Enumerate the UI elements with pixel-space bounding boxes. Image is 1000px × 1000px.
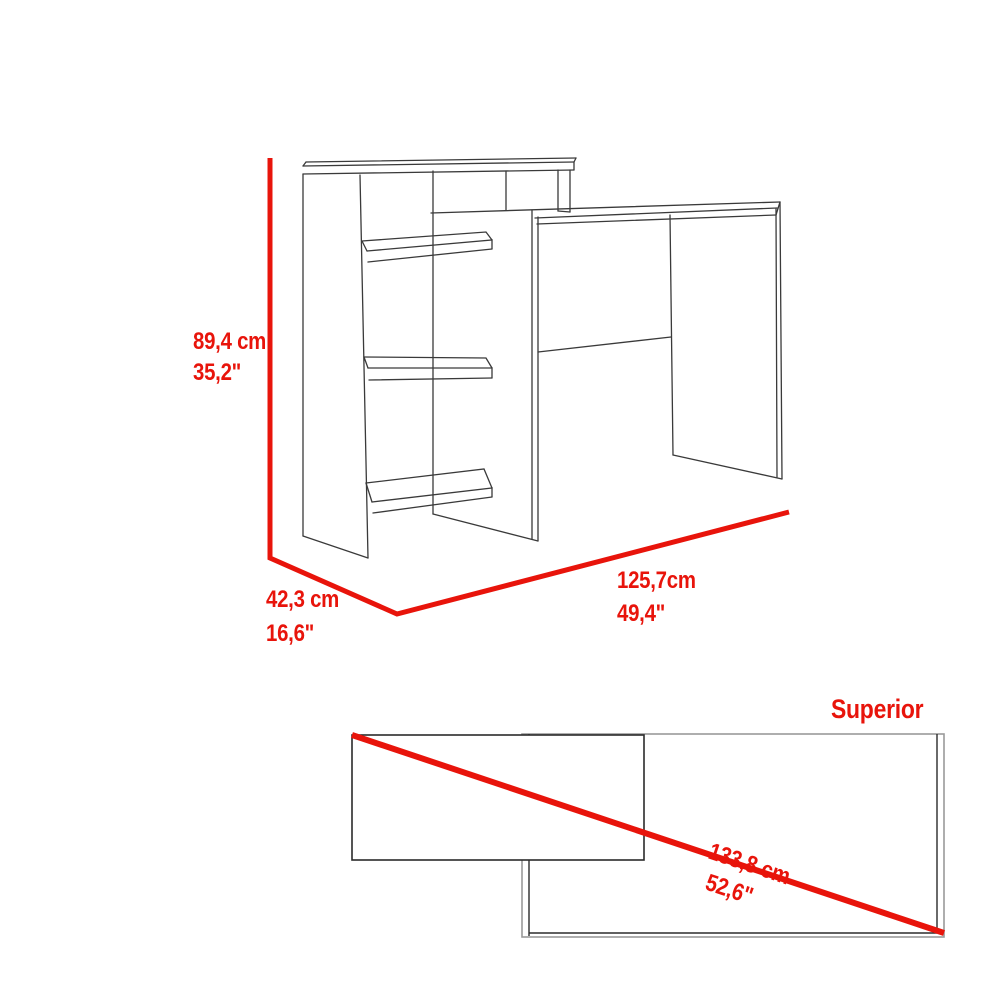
diagram-svg: 89,4 cm 35,2" 42,3 cm 16,6" 125,7cm 49,4… [0,0,1000,1000]
top-view: Superior 133,8 cm 52,6" [352,694,944,937]
right-side-panel [670,202,782,479]
furniture-dimension-diagram: 89,4 cm 35,2" 42,3 cm 16,6" 125,7cm 49,4… [0,0,1000,1000]
depth-label-in: 16,6" [266,619,314,646]
width-label-cm: 125,7cm [617,566,696,593]
desk-top [431,202,780,224]
shelf-middle [364,357,492,380]
shelf-upper [362,232,492,262]
dimension-lines-3d [270,158,789,614]
height-label-in: 35,2" [193,358,241,385]
desk-3d-view [303,158,782,558]
width-label-in: 49,4" [617,599,665,626]
hutch-supports [506,170,570,212]
shelf-bottom [366,469,492,513]
height-dimension-line [270,158,789,614]
top-view-title: Superior [831,694,924,724]
center-support-panel [433,171,538,541]
left-side-panel [303,174,368,558]
depth-label-cm: 42,3 cm [266,585,339,612]
shelf-unit-top-board [303,158,576,174]
height-label-cm: 89,4 cm [193,327,266,354]
back-panel-edge [538,337,671,352]
top-view-shelf-rect [352,735,644,860]
